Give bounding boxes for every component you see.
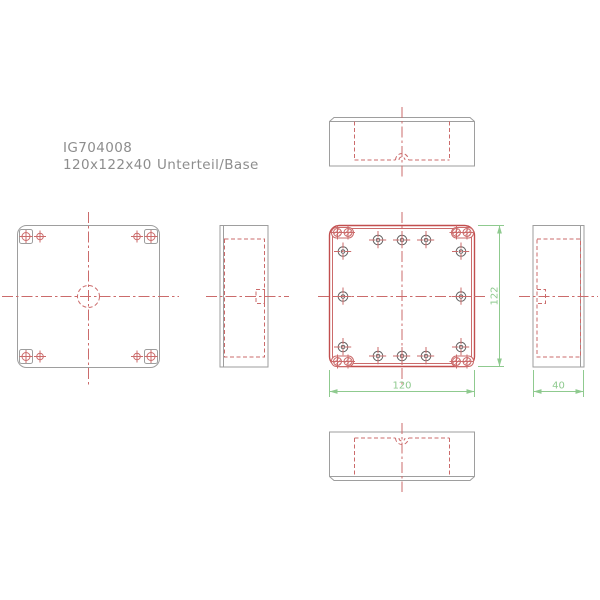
mount-hole-icon bbox=[20, 350, 33, 363]
mount-hole-icon bbox=[34, 231, 46, 243]
mount-hole-icon bbox=[34, 351, 46, 363]
part-name: Unterteil/Base bbox=[157, 157, 259, 173]
view-side-right bbox=[519, 226, 598, 368]
screw-boss-icon bbox=[417, 347, 435, 365]
article-number: IG704008 bbox=[63, 140, 132, 156]
screw-boss-icon bbox=[334, 243, 352, 261]
view-base-interior bbox=[318, 212, 488, 386]
screw-boss-icon bbox=[417, 231, 435, 249]
view-bottom-face bbox=[2, 212, 179, 385]
screw-boss-icon bbox=[334, 338, 352, 356]
mount-hole-icon bbox=[131, 351, 143, 363]
view-bottom-edge bbox=[330, 423, 475, 492]
screw-boss-icon bbox=[369, 231, 387, 249]
screw-boss-icon bbox=[452, 338, 470, 356]
mount-hole-icon bbox=[145, 230, 158, 243]
width-dimension-label: 120 bbox=[392, 381, 411, 392]
technical-drawing: IG704008 120x122x40 Unterteil/Base bbox=[0, 0, 600, 600]
height-dimension-label: 122 bbox=[490, 286, 501, 305]
view-top-edge bbox=[330, 107, 475, 177]
drawing-canvas: IG704008 120x122x40 Unterteil/Base bbox=[0, 0, 600, 600]
depth-dimension-label: 40 bbox=[552, 381, 565, 392]
mount-hole-icon bbox=[20, 230, 33, 243]
title-block: IG704008 120x122x40 Unterteil/Base bbox=[63, 140, 259, 173]
view-side-left bbox=[206, 226, 289, 368]
screw-boss-icon bbox=[452, 243, 470, 261]
screw-boss-icon bbox=[369, 347, 387, 365]
mount-hole-icon bbox=[145, 350, 158, 363]
dimension-depth: 40 bbox=[534, 370, 584, 397]
part-size: 120x122x40 bbox=[63, 157, 152, 173]
right-side-hidden-cavity bbox=[537, 239, 581, 357]
left-side-hidden-cavity bbox=[225, 239, 265, 357]
mount-hole-icon bbox=[131, 231, 143, 243]
